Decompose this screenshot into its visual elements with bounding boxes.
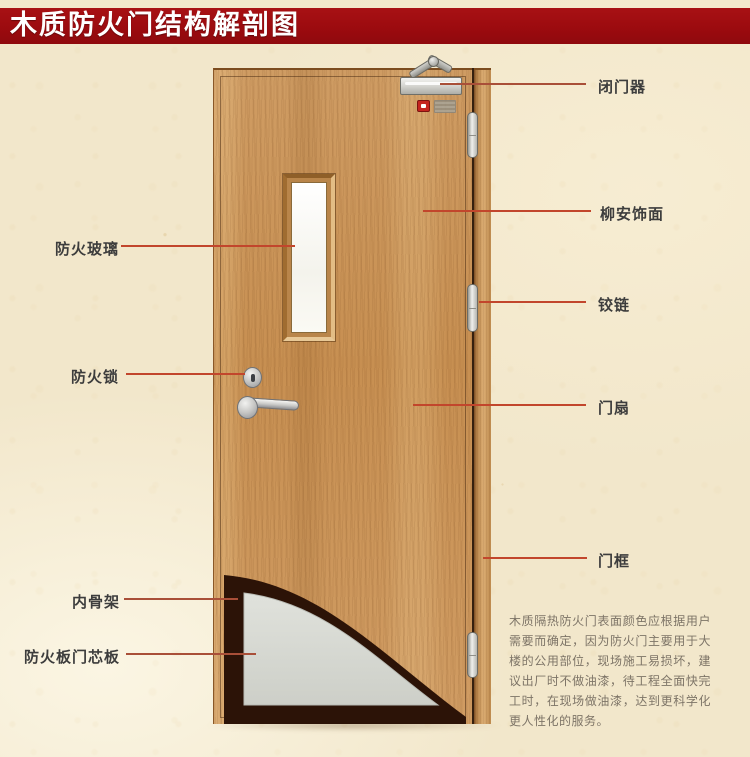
label-fire-lock: 防火锁 [71,366,119,387]
diagram-canvas: 木质防火门结构解剖图 [0,0,750,757]
cutaway-section [214,567,473,724]
label-hinge: 铰链 [598,294,630,315]
fire-lock-cylinder [243,367,262,388]
label-core-board: 防火板门芯板 [24,646,120,667]
hinge-bottom [467,632,478,678]
title-banner: 木质防火门结构解剖图 [0,8,750,44]
core-board-shape [244,593,438,705]
hinge-middle [467,284,478,332]
leader-line-door-closer [440,83,586,85]
label-door-closer: 闭门器 [598,76,646,97]
label-door-frame: 门框 [598,550,630,571]
leader-line-door-frame [483,557,587,559]
fire-glass-window [283,174,335,341]
label-door-leaf: 门扇 [598,397,630,418]
leader-line-fire-glass [121,245,295,247]
door-handle-rose [237,396,258,419]
leader-line-fire-lock [126,373,245,375]
leader-line-core-board [126,653,256,655]
grey-label-patch [434,100,456,113]
hinge-top [467,112,478,158]
leader-line-door-leaf [413,404,586,406]
label-fire-glass: 防火玻璃 [55,238,119,259]
product-description: 木质隔热防火门表面颜色应根据用户需要而确定，因为防火门主要用于大楼的公用部位，现… [509,611,711,731]
leader-line-hinge [479,301,586,303]
door-frame [474,68,491,724]
leader-line-veneer [423,210,591,212]
door-closer-body [400,77,462,95]
page-title: 木质防火门结构解剖图 [0,8,300,44]
door-leaf [213,68,472,724]
label-inner-skeleton: 内骨架 [72,591,120,612]
door-closer-knuckle [428,56,439,67]
label-veneer: 柳安饰面 [600,203,664,224]
leader-line-inner-skeleton [124,598,238,600]
fire-glass-pane [291,182,327,333]
red-indicator-badge [417,100,430,112]
